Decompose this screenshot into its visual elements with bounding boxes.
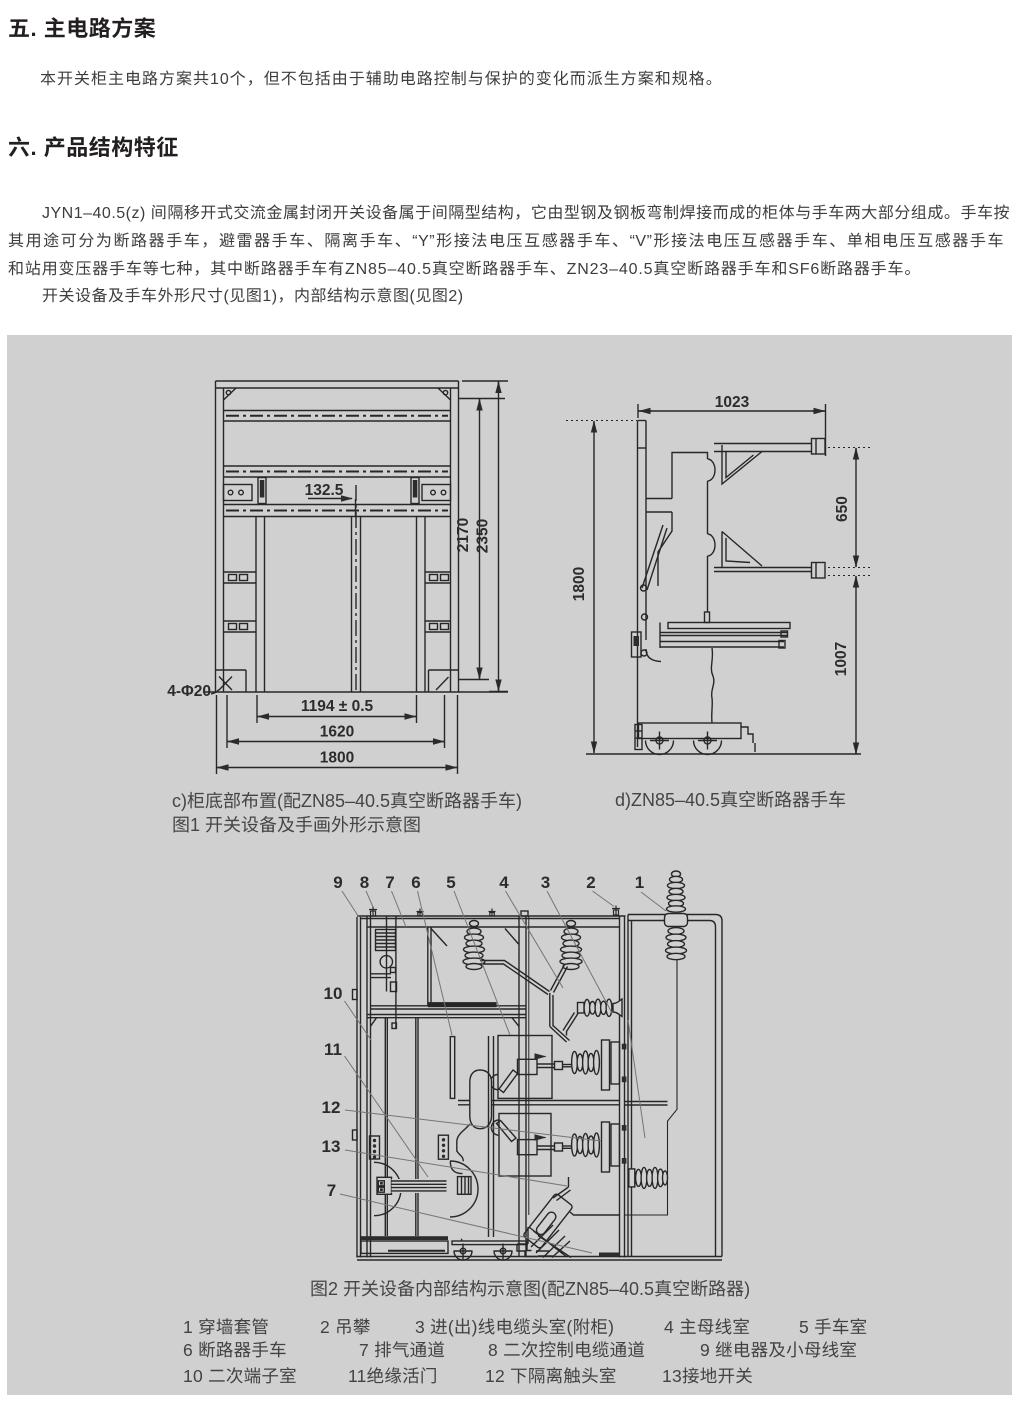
svg-text:2350: 2350 [475, 519, 492, 553]
svg-text:1800: 1800 [571, 567, 588, 601]
svg-text:650: 650 [834, 496, 851, 522]
svg-text:1800: 1800 [320, 750, 354, 767]
svg-text:1194 ± 0.5: 1194 ± 0.5 [301, 698, 374, 715]
svg-text:1007: 1007 [833, 642, 850, 676]
svg-text:4-Φ20: 4-Φ20 [167, 683, 211, 700]
svg-text:2170: 2170 [455, 518, 472, 552]
svg-text:1023: 1023 [715, 394, 750, 411]
svg-text:1620: 1620 [320, 724, 354, 741]
svg-text:132.5: 132.5 [305, 482, 344, 499]
